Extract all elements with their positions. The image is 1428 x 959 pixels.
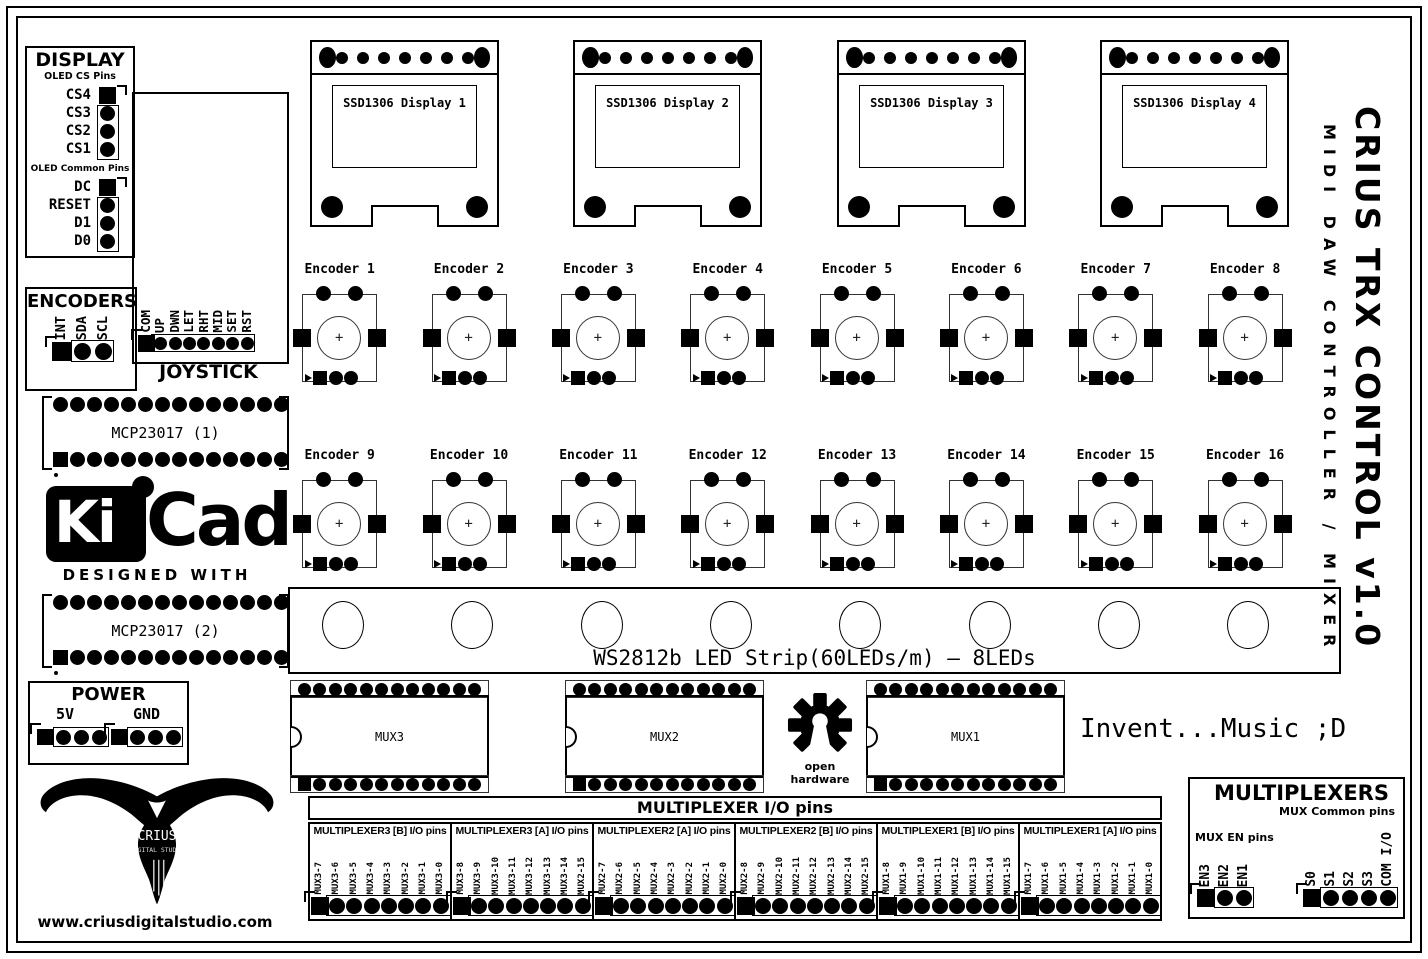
pin-label: RST bbox=[237, 287, 257, 333]
pin-pad-round bbox=[990, 371, 1004, 385]
pin-label-text: MUX2-0 bbox=[720, 862, 729, 895]
encoder-label: Encoder 5 bbox=[792, 262, 921, 277]
pin-pad-round bbox=[975, 557, 989, 571]
pin1-arrow bbox=[1081, 374, 1088, 382]
mount-hole bbox=[1001, 47, 1018, 68]
pin-label-text: MUX1-10 bbox=[918, 857, 927, 895]
pin-pad-round bbox=[834, 286, 849, 301]
pin1-dot bbox=[54, 473, 58, 477]
encoder-label: Encoder 12 bbox=[663, 448, 792, 463]
power-5v-pins bbox=[36, 727, 108, 747]
encoder-label: Encoder 6 bbox=[922, 262, 1051, 277]
pin-pad-square bbox=[442, 371, 456, 385]
pin-pad-square bbox=[1069, 329, 1087, 347]
mount-hole bbox=[848, 196, 870, 218]
pin-pad-round bbox=[936, 683, 949, 696]
pin-pad-round bbox=[74, 730, 89, 745]
pin-pad-round bbox=[704, 52, 716, 64]
pin-label: CS4 bbox=[29, 86, 91, 104]
pin-pad-round bbox=[728, 683, 741, 696]
pin-pad-round bbox=[1105, 557, 1119, 571]
pin-pad-round bbox=[70, 650, 85, 665]
pin-pad-round bbox=[874, 683, 887, 696]
pin-pad-round bbox=[155, 452, 170, 467]
multiplexer-io-block: MULTIPLEXER1 [A] I/O pinsMUX1-7MUX1-6MUX… bbox=[1018, 822, 1162, 921]
crius-bull-logo: CRIUS DIGITAL STUDIO bbox=[38, 760, 276, 912]
pin-pad-round bbox=[602, 371, 616, 385]
pin-pad-round bbox=[995, 472, 1010, 487]
multiplexer-io-block: MULTIPLEXER3 [B] I/O pinsMUX3-7MUX3-6MUX… bbox=[308, 822, 452, 921]
pin1-bracket bbox=[117, 177, 127, 187]
pin-pad-round bbox=[1029, 778, 1042, 791]
pin-pad-round bbox=[329, 898, 345, 914]
pin-pad-round bbox=[905, 778, 918, 791]
oled-bottom-notch bbox=[1161, 205, 1229, 227]
pin-pad-round bbox=[172, 397, 187, 412]
pin-pad-round bbox=[360, 778, 373, 791]
pin-pad-round bbox=[607, 472, 622, 487]
pin-pad-round bbox=[1234, 557, 1248, 571]
pin-pad-round bbox=[743, 778, 756, 791]
mux-bottom-pin-row bbox=[290, 775, 489, 793]
pin-label-text: MUX2-2 bbox=[686, 862, 695, 895]
encoder-shaft-circle: + bbox=[1093, 502, 1137, 546]
pin-pad-round bbox=[949, 898, 965, 914]
board-subtitle-vertical: MIDI DAW CONTROLLER / MIXER bbox=[1317, 124, 1339, 724]
pin-pad-round bbox=[602, 557, 616, 571]
oled-top-pin-row bbox=[312, 42, 497, 75]
multiplexer-io-pins: MUX1-8MUX1-9MUX1-10MUX1-11MUX1-12MUX1-13… bbox=[879, 839, 1017, 917]
pin-pad-square bbox=[99, 87, 116, 104]
pin-pad-round bbox=[87, 595, 102, 610]
mux-bottom-pin-row bbox=[565, 775, 764, 793]
pin-pad-round bbox=[53, 397, 68, 412]
pin-pad-square bbox=[1197, 889, 1215, 907]
pin-pad-round bbox=[189, 650, 204, 665]
pin1-arrow bbox=[434, 374, 441, 382]
pin-pad-round bbox=[344, 683, 357, 696]
pin-pad-round bbox=[226, 337, 239, 350]
bull-logo-text: CRIUS bbox=[138, 829, 177, 844]
pin-pad-round bbox=[506, 898, 522, 914]
pin-pad-round bbox=[982, 683, 995, 696]
encoder-shaft-circle: + bbox=[705, 502, 749, 546]
pin-pad-round bbox=[471, 898, 487, 914]
oled-pin-dots bbox=[599, 52, 737, 64]
oled-top-pin-row bbox=[575, 42, 760, 75]
pin-label-text: MUX3-13 bbox=[544, 857, 553, 895]
pin-label-text: MUX2-3 bbox=[668, 862, 677, 895]
pin-pad-round bbox=[420, 52, 432, 64]
pin-pad-round bbox=[743, 683, 756, 696]
led-outline bbox=[710, 601, 752, 649]
pin-pad-round bbox=[998, 778, 1011, 791]
pin-pad-round bbox=[378, 52, 390, 64]
pin-pad-square bbox=[874, 778, 887, 791]
pin-label-text: RST bbox=[241, 310, 254, 333]
encoder-shaft-circle: + bbox=[576, 502, 620, 546]
pin-pad-square bbox=[1199, 515, 1217, 533]
encoder-label: Encoder 2 bbox=[404, 262, 533, 277]
pin-pad-round bbox=[604, 778, 617, 791]
pin-pad-round bbox=[240, 595, 255, 610]
encoder-footprint: Encoder 4+ bbox=[663, 262, 792, 394]
pin-pad-round bbox=[712, 683, 725, 696]
oled-display-module: SSD1306 Display 2 bbox=[573, 40, 762, 227]
pin-pad-square bbox=[737, 897, 755, 915]
multiplexer-io-block: MULTIPLEXER3 [A] I/O pinsMUX3-8MUX3-9MUX… bbox=[450, 822, 594, 921]
pin-pad-round bbox=[1091, 898, 1107, 914]
pin-pad-round bbox=[437, 778, 450, 791]
pin-label-text: MUX1-1 bbox=[1129, 862, 1138, 895]
pin-pad-round bbox=[1380, 890, 1396, 906]
pin-pad-round bbox=[441, 52, 453, 64]
pin-pad-round bbox=[717, 371, 731, 385]
multiplexer-io-block-title: MULTIPLEXER2 [B] I/O pins bbox=[736, 825, 876, 837]
pin-pad-round bbox=[1147, 52, 1159, 64]
pin-label-text: MUX2-5 bbox=[634, 862, 643, 895]
pin-pad-round bbox=[422, 683, 435, 696]
pin-pad-round bbox=[104, 650, 119, 665]
pin-label: MUX1-0 bbox=[1139, 839, 1162, 895]
pin-pad-round bbox=[1217, 890, 1233, 906]
pin-pad-round bbox=[257, 595, 272, 610]
pin-pad-round bbox=[189, 397, 204, 412]
pin-pad-square bbox=[571, 557, 585, 571]
pin-label-text: EN1 bbox=[1237, 864, 1250, 887]
pin-pad-round bbox=[926, 52, 938, 64]
pin-pad-round bbox=[74, 343, 91, 360]
kicad-logo: Ki Cad DESIGNED WITH bbox=[46, 482, 268, 584]
encoder-shaft-circle: + bbox=[1093, 316, 1137, 360]
mcp-label: MCP23017 (1) bbox=[42, 424, 289, 442]
encoder-shaft-circle: + bbox=[835, 316, 879, 360]
pin-pad-round bbox=[863, 52, 875, 64]
pin-pad-round bbox=[172, 452, 187, 467]
joystick-pins: COMUPDWNLETRHTMIDSETRST bbox=[139, 287, 254, 354]
pin-pad-round bbox=[257, 397, 272, 412]
pin-pad-round bbox=[257, 650, 272, 665]
encoder-footprint: Encoder 11+ bbox=[534, 448, 663, 580]
pin-pad-square bbox=[830, 371, 844, 385]
pin-pad-round bbox=[223, 595, 238, 610]
pin-pad-round bbox=[1210, 52, 1222, 64]
encoder-shaft-circle: + bbox=[1223, 316, 1267, 360]
pin-pad-round bbox=[169, 337, 182, 350]
pin-label-text: MUX2-15 bbox=[862, 857, 871, 895]
encoder-shaft-circle: + bbox=[964, 502, 1008, 546]
pin-label-text: SCL bbox=[97, 316, 111, 340]
pin-label-text: INT bbox=[55, 316, 69, 340]
pin-label-text: MUX1-3 bbox=[1094, 862, 1103, 895]
pin-label-text: MUX1-8 bbox=[883, 862, 892, 895]
pin-label-text: MUX3-7 bbox=[315, 862, 324, 895]
pin-pad-square bbox=[552, 329, 570, 347]
display-pin-section: DISPLAY OLED CS Pins OLED Common Pins CS… bbox=[25, 46, 135, 258]
pin-pad-round bbox=[329, 371, 343, 385]
pin-pad-square bbox=[627, 329, 645, 347]
encoder-label: Encoder 13 bbox=[792, 448, 921, 463]
encoder-shaft-circle: + bbox=[317, 316, 361, 360]
oled-screen-outline: SSD1306 Display 2 bbox=[595, 85, 740, 168]
encoder-label: Encoder 4 bbox=[663, 262, 792, 277]
pin-pad-round bbox=[104, 397, 119, 412]
pin-label-text: MUX3-6 bbox=[332, 862, 341, 895]
pin-pad-square bbox=[1089, 557, 1103, 571]
mount-hole bbox=[582, 47, 599, 68]
pin-label-text: MUX3-1 bbox=[419, 862, 428, 895]
pin-pad-round bbox=[1120, 371, 1134, 385]
pin-pad-round bbox=[982, 778, 995, 791]
pin-pad-square bbox=[940, 329, 958, 347]
joystick-pin-section: COMUPDWNLETRHTMIDSETRST bbox=[132, 92, 289, 364]
mount-hole bbox=[1109, 47, 1126, 68]
pin-pad-round bbox=[1361, 890, 1377, 906]
pin-pad-round bbox=[100, 198, 115, 213]
pin-pad-round bbox=[138, 452, 153, 467]
pin-pad-square bbox=[701, 371, 715, 385]
pin-pad-square bbox=[552, 515, 570, 533]
pin-pad-round bbox=[375, 778, 388, 791]
pin1-arrow bbox=[1210, 374, 1217, 382]
pin-pad-round bbox=[399, 52, 411, 64]
encoder-label: Encoder 11 bbox=[534, 448, 663, 463]
pin-pad-round bbox=[588, 778, 601, 791]
pin-label-text: MUX3-2 bbox=[402, 862, 411, 895]
oled-bottom-notch bbox=[634, 205, 702, 227]
multiplexer-io-block: MULTIPLEXER1 [B] I/O pinsMUX1-8MUX1-9MUX… bbox=[876, 822, 1020, 921]
pin-pad-round bbox=[70, 595, 85, 610]
pin-pad-round bbox=[932, 898, 948, 914]
pin-pad-square bbox=[1274, 329, 1292, 347]
encoder-label: Encoder 10 bbox=[404, 448, 533, 463]
multiplexer-io-pins: MUX2-7MUX2-6MUX2-5MUX2-4MUX2-3MUX2-2MUX2… bbox=[595, 839, 733, 917]
pin-pad-round bbox=[223, 452, 238, 467]
pin-pad-round bbox=[998, 683, 1011, 696]
pin-pad-round bbox=[681, 683, 694, 696]
pin-pad-round bbox=[172, 595, 187, 610]
pin-pad-round bbox=[100, 216, 115, 231]
pin-pad-round bbox=[1249, 371, 1263, 385]
mux-pin1-notch bbox=[566, 726, 577, 748]
led-outline bbox=[451, 601, 493, 649]
pin-pad-round bbox=[329, 778, 342, 791]
pin-pad-round bbox=[1222, 472, 1237, 487]
pin-pad-square bbox=[1144, 515, 1162, 533]
encoder-shaft-circle: + bbox=[964, 316, 1008, 360]
pin-label-text: COM I/O bbox=[1381, 832, 1394, 887]
pin-pad-square bbox=[442, 557, 456, 571]
pin-pad-round bbox=[889, 778, 902, 791]
pin-pad-round bbox=[375, 683, 388, 696]
pin-pad-round bbox=[920, 683, 933, 696]
mux-body: MUX1 bbox=[866, 695, 1065, 778]
pin-label-text: SDA bbox=[76, 316, 90, 340]
pin-pad-round bbox=[635, 778, 648, 791]
mcp-top-pin-row bbox=[53, 595, 289, 610]
pin-pad-round bbox=[650, 683, 663, 696]
pin-pad-square bbox=[1144, 329, 1162, 347]
pin-label: RESET bbox=[29, 196, 91, 214]
pin-pad-round bbox=[575, 286, 590, 301]
pin-pad-round bbox=[1105, 371, 1119, 385]
pin1-arrow bbox=[305, 374, 312, 382]
pin-label: CS3 bbox=[29, 104, 91, 122]
pin-pad-round bbox=[861, 557, 875, 571]
pin1-arrow bbox=[951, 560, 958, 568]
pin-pad-round bbox=[607, 286, 622, 301]
pin-pad-square bbox=[52, 342, 71, 361]
pin-pad-round bbox=[641, 52, 653, 64]
pin-pad-round bbox=[155, 397, 170, 412]
encoder-footprint: Encoder 3+ bbox=[534, 262, 663, 394]
pin-pad-round bbox=[1120, 557, 1134, 571]
pin-pad-round bbox=[453, 778, 466, 791]
oled-cs-pins-header: OLED CS Pins bbox=[27, 71, 133, 82]
encoder-footprint: Encoder 7+ bbox=[1051, 262, 1180, 394]
pin-pad-round bbox=[588, 683, 601, 696]
pin-pad-square bbox=[595, 897, 613, 915]
pin-label-text: MUX1-9 bbox=[900, 862, 909, 895]
pin-label-text: MUX1-14 bbox=[987, 857, 996, 895]
power-gnd-label: GND bbox=[133, 705, 160, 723]
pin-pad-square bbox=[1199, 329, 1217, 347]
mount-hole bbox=[1256, 196, 1278, 218]
encoder-footprint: Encoder 8+ bbox=[1180, 262, 1309, 394]
multiplexers-title: MULTIPLEXERS bbox=[1200, 781, 1403, 805]
pin-pad-round bbox=[599, 52, 611, 64]
pin-pad-square bbox=[811, 515, 829, 533]
pin-pad-square bbox=[99, 179, 116, 196]
pin-pad-round bbox=[95, 343, 112, 360]
display-section-title: DISPLAY bbox=[27, 49, 133, 71]
pin-pad-round bbox=[1013, 778, 1026, 791]
oled-screen-outline: SSD1306 Display 1 bbox=[332, 85, 477, 168]
pin-pad-round bbox=[620, 52, 632, 64]
mount-hole bbox=[729, 196, 751, 218]
pin-pad-round bbox=[360, 683, 373, 696]
encoder-shaft-circle: + bbox=[705, 316, 749, 360]
led-outline bbox=[1098, 601, 1140, 649]
pin-label-text: MUX3-3 bbox=[384, 862, 393, 895]
pin-pad-round bbox=[1249, 557, 1263, 571]
pin-label: MUX3-0 bbox=[429, 839, 452, 895]
pin1-arrow bbox=[1081, 560, 1088, 568]
pin-pad-round bbox=[665, 898, 681, 914]
pin-pad-round bbox=[274, 397, 289, 412]
pin-pad-round bbox=[138, 397, 153, 412]
pin-pad-round bbox=[889, 683, 902, 696]
pin-pad-square bbox=[940, 515, 958, 533]
pin-pad-round bbox=[462, 52, 474, 64]
pin-pad-square bbox=[627, 515, 645, 533]
pin-pad-round bbox=[381, 898, 397, 914]
open-hardware-label: open hardware bbox=[781, 760, 859, 786]
power-section: POWER 5V GND bbox=[28, 681, 189, 765]
oled-top-pin-row bbox=[1102, 42, 1287, 75]
encoder-footprint: Encoder 5+ bbox=[792, 262, 921, 394]
pin-label: D1 bbox=[29, 214, 91, 232]
pin-pad-round bbox=[968, 52, 980, 64]
pin-pad-square bbox=[830, 557, 844, 571]
encoder-footprint: Encoder 1+ bbox=[275, 262, 404, 394]
mount-hole bbox=[1264, 47, 1281, 68]
pin-pad-round bbox=[130, 730, 145, 745]
pin-pad-round bbox=[697, 778, 710, 791]
pin-pad-round bbox=[1254, 472, 1269, 487]
pin-pad-round bbox=[104, 595, 119, 610]
pin-label-text: MUX3-9 bbox=[474, 862, 483, 895]
pin-pad-square bbox=[423, 329, 441, 347]
pin-pad-round bbox=[121, 452, 136, 467]
slogan-text: Invent...Music ;D bbox=[1080, 714, 1346, 744]
pin-pad-round bbox=[1234, 371, 1248, 385]
pin-pad-round bbox=[575, 472, 590, 487]
encoder-row-1: Encoder 1+Encoder 2+Encoder 3+Encoder 4+… bbox=[275, 262, 1310, 394]
pin-label-text: MUX1-12 bbox=[952, 857, 961, 895]
multiplexers-section: MULTIPLEXERS MUX Common pins MUX EN pins… bbox=[1188, 777, 1405, 919]
pin-pad-round bbox=[166, 730, 181, 745]
pin-pad-square bbox=[111, 729, 127, 745]
pin-pad-round bbox=[662, 52, 674, 64]
multiplexer-io-section: MULTIPLEXER I/O pins MULTIPLEXER3 [B] I/… bbox=[308, 796, 1162, 921]
ws2812b-led-strip: WS2812b LED Strip(60LEDs/m) – 8LEDs bbox=[288, 587, 1341, 674]
pin-label-text: MUX2-13 bbox=[828, 857, 837, 895]
pin-label: MUX2-15 bbox=[855, 839, 878, 895]
pin-pad-round bbox=[344, 778, 357, 791]
pin-pad-round bbox=[732, 371, 746, 385]
multiplexer-io-block-title: MULTIPLEXER1 [A] I/O pins bbox=[1020, 825, 1160, 837]
pin-label-text: MUX2-14 bbox=[845, 857, 854, 895]
encoder-shaft-circle: + bbox=[576, 316, 620, 360]
encoder-footprint: Encoder 14+ bbox=[922, 448, 1051, 580]
mount-hole bbox=[319, 47, 336, 68]
multiplexer-io-block-title: MULTIPLEXER3 [A] I/O pins bbox=[452, 825, 592, 837]
pin1-arrow bbox=[434, 560, 441, 568]
mux-en-pins: EN3EN2EN1 bbox=[1196, 845, 1253, 909]
pin-pad-round bbox=[453, 683, 466, 696]
pin-pad-square bbox=[138, 335, 155, 352]
pin1-arrow bbox=[563, 374, 570, 382]
oled-pin-dots bbox=[863, 52, 1001, 64]
pin-pad-round bbox=[1168, 52, 1180, 64]
pin-pad-round bbox=[963, 286, 978, 301]
multiplexer-io-pins: MUX3-7MUX3-6MUX3-5MUX3-4MUX3-3MUX3-2MUX3… bbox=[311, 839, 449, 917]
pin-pad-round bbox=[148, 730, 163, 745]
pin-label-text: MUX3-8 bbox=[457, 862, 466, 895]
mount-hole bbox=[466, 196, 488, 218]
pin-label-text: MUX1-11 bbox=[935, 857, 944, 895]
pin1-bracket bbox=[117, 85, 127, 95]
encoder-label: Encoder 8 bbox=[1180, 262, 1309, 277]
pin-label-text: MUX3-14 bbox=[561, 857, 570, 895]
pin-label: COM I/O bbox=[1375, 845, 1400, 887]
pin-pad-round bbox=[1231, 52, 1243, 64]
pin1-arrow bbox=[822, 374, 829, 382]
pin-pad-round bbox=[100, 124, 115, 139]
pin-pad-round bbox=[604, 683, 617, 696]
pin1-dot bbox=[54, 671, 58, 675]
encoder-shaft-circle: + bbox=[835, 502, 879, 546]
pin-pad-square bbox=[498, 515, 516, 533]
pin-pad-round bbox=[1029, 683, 1042, 696]
mux-bottom-pin-row bbox=[866, 775, 1065, 793]
pin-pad-round bbox=[587, 371, 601, 385]
pin-label-text: MUX1-4 bbox=[1077, 862, 1086, 895]
pin-label-text: EN2 bbox=[1218, 864, 1231, 887]
pin-pad-round bbox=[732, 557, 746, 571]
oled-bottom-notch bbox=[898, 205, 966, 227]
